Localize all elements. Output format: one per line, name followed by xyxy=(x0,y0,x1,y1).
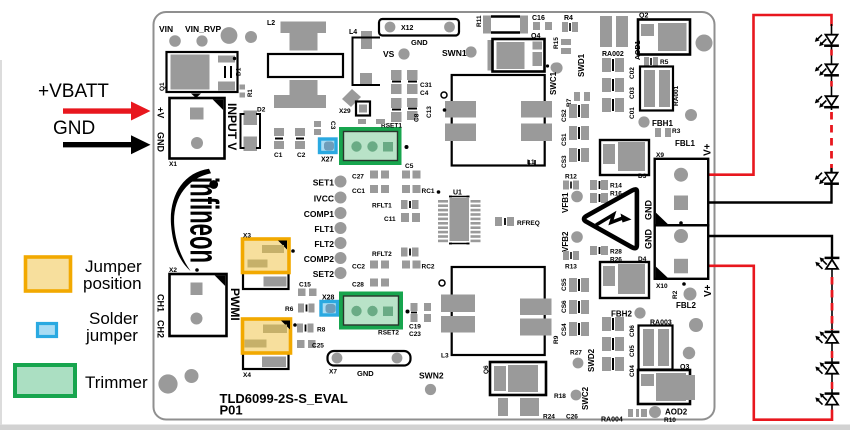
svg-text:CS2: CS2 xyxy=(561,109,568,122)
svg-text:IVCC: IVCC xyxy=(314,194,334,204)
svg-text:R6: R6 xyxy=(285,306,294,313)
svg-text:U1: U1 xyxy=(453,190,462,197)
svg-text:C27: C27 xyxy=(352,174,364,181)
svg-text:P01: P01 xyxy=(220,403,243,418)
svg-text:RC2: RC2 xyxy=(422,264,435,271)
svg-text:C28: C28 xyxy=(352,282,364,289)
svg-text:CS5: CS5 xyxy=(561,278,568,291)
svg-text:SWN2: SWN2 xyxy=(419,371,444,381)
svg-text:X29: X29 xyxy=(339,108,351,115)
svg-text:CS6: CS6 xyxy=(561,300,568,313)
svg-text:V+: V+ xyxy=(703,143,714,156)
svg-text:RA002: RA002 xyxy=(602,51,624,58)
svg-text:VIN: VIN xyxy=(159,24,173,34)
svg-text:CS4: CS4 xyxy=(561,323,568,336)
svg-text:FLT1: FLT1 xyxy=(314,224,334,234)
svg-text:L1: L1 xyxy=(527,159,535,166)
svg-text:R1: R1 xyxy=(248,89,254,97)
svg-text:X27: X27 xyxy=(321,157,334,164)
svg-text:CC1: CC1 xyxy=(352,188,365,195)
svg-text:SWD2: SWD2 xyxy=(587,348,596,372)
svg-text:Q6: Q6 xyxy=(483,365,490,374)
svg-text:COMP1: COMP1 xyxy=(304,209,335,219)
svg-text:SWC2: SWC2 xyxy=(581,386,590,410)
svg-text:SWN1: SWN1 xyxy=(442,48,467,58)
svg-text:C04: C04 xyxy=(629,365,636,377)
svg-text:VFB1: VFB1 xyxy=(561,192,570,213)
svg-text:R9: R9 xyxy=(553,335,560,344)
svg-text:D2: D2 xyxy=(257,107,266,114)
svg-text:R27: R27 xyxy=(570,350,582,357)
svg-text:C06: C06 xyxy=(629,325,636,337)
svg-text:X12: X12 xyxy=(401,25,414,32)
svg-text:C13: C13 xyxy=(426,106,433,118)
svg-text:R12: R12 xyxy=(565,174,577,181)
svg-text:VS: VS xyxy=(383,49,395,59)
svg-text:GND: GND xyxy=(644,229,654,250)
svg-text:C4: C4 xyxy=(420,90,429,97)
svg-text:position: position xyxy=(83,274,142,293)
svg-text:C1: C1 xyxy=(274,152,283,159)
svg-text:X9: X9 xyxy=(656,152,664,159)
svg-text:C8: C8 xyxy=(414,113,421,122)
svg-text:GND: GND xyxy=(357,369,374,378)
svg-text:C5: C5 xyxy=(405,163,414,170)
svg-text:R13: R13 xyxy=(565,264,577,271)
svg-text:C26: C26 xyxy=(566,414,578,421)
svg-text:Trimmer: Trimmer xyxy=(85,373,148,392)
svg-text:R28: R28 xyxy=(610,249,622,256)
svg-text:X28: X28 xyxy=(322,295,335,302)
svg-text:GND: GND xyxy=(156,132,166,153)
svg-text:RFLT1: RFLT1 xyxy=(372,203,392,210)
svg-text:C25: C25 xyxy=(312,343,324,350)
svg-text:FLT2: FLT2 xyxy=(314,239,334,249)
svg-text:R8: R8 xyxy=(317,327,326,334)
svg-text:R10: R10 xyxy=(664,417,676,424)
svg-text:infineon: infineon xyxy=(182,177,226,263)
svg-text:C31: C31 xyxy=(420,82,432,89)
svg-text:L4: L4 xyxy=(349,29,357,36)
svg-text:FBH1: FBH1 xyxy=(652,119,673,128)
svg-text:GND: GND xyxy=(53,118,95,139)
svg-text:RSET2: RSET2 xyxy=(378,330,399,337)
svg-text:Q2: Q2 xyxy=(639,13,648,20)
svg-text:RFREQ: RFREQ xyxy=(517,220,540,227)
svg-text:R3: R3 xyxy=(672,128,681,135)
svg-text:C01: C01 xyxy=(629,107,636,119)
svg-text:RFLT2: RFLT2 xyxy=(372,251,392,258)
svg-text:L3: L3 xyxy=(441,353,449,360)
svg-text:CH2: CH2 xyxy=(156,320,166,338)
svg-text:COMP2: COMP2 xyxy=(304,254,335,264)
svg-text:RC1: RC1 xyxy=(422,188,435,195)
svg-text:+V: +V xyxy=(156,107,166,118)
svg-text:X4: X4 xyxy=(243,372,251,379)
svg-text:+VBATT: +VBATT xyxy=(38,81,109,102)
svg-text:CS1: CS1 xyxy=(561,133,568,146)
svg-text:RA003: RA003 xyxy=(650,320,672,327)
svg-text:R18: R18 xyxy=(554,393,566,400)
svg-text:AOD1: AOD1 xyxy=(635,40,642,60)
svg-text:GND: GND xyxy=(644,200,654,221)
svg-text:SWD1: SWD1 xyxy=(577,53,586,77)
svg-text:D4: D4 xyxy=(638,256,647,263)
svg-text:C05: C05 xyxy=(629,345,636,357)
svg-text:R2: R2 xyxy=(672,290,679,299)
svg-text:CH1: CH1 xyxy=(156,294,166,312)
svg-text:C02: C02 xyxy=(629,67,636,79)
svg-text:R14: R14 xyxy=(610,183,622,190)
svg-text:INPUT V: INPUT V xyxy=(225,103,239,150)
svg-text:V+: V+ xyxy=(703,284,714,297)
svg-text:CC2: CC2 xyxy=(352,264,365,271)
svg-text:CS3: CS3 xyxy=(561,155,568,168)
svg-text:R11: R11 xyxy=(476,15,483,27)
svg-text:X3: X3 xyxy=(243,233,251,240)
svg-text:C15: C15 xyxy=(299,282,311,289)
svg-text:C03: C03 xyxy=(629,87,636,99)
svg-text:VIN_RVP: VIN_RVP xyxy=(185,24,222,34)
svg-text:X1: X1 xyxy=(169,161,177,168)
svg-text:D1: D1 xyxy=(236,67,243,76)
svg-text:X10: X10 xyxy=(656,283,668,290)
svg-text:Q1: Q1 xyxy=(159,82,166,91)
svg-text:D3: D3 xyxy=(638,173,647,180)
svg-text:Q4: Q4 xyxy=(531,33,540,40)
svg-text:SET1: SET1 xyxy=(313,178,335,188)
svg-text:RA001: RA001 xyxy=(673,85,680,106)
svg-text:X2: X2 xyxy=(169,267,177,274)
svg-text:FBL1: FBL1 xyxy=(675,139,696,148)
svg-text:PWMI: PWMI xyxy=(228,288,242,321)
svg-text:GND: GND xyxy=(411,38,428,47)
svg-text:C19: C19 xyxy=(409,324,421,331)
svg-text:VFB2: VFB2 xyxy=(561,231,570,252)
svg-text:C3: C3 xyxy=(329,121,336,130)
svg-text:R24: R24 xyxy=(543,414,555,421)
svg-text:C11: C11 xyxy=(384,216,396,223)
svg-text:R5: R5 xyxy=(660,59,669,66)
svg-text:RA004: RA004 xyxy=(601,417,623,424)
svg-text:AOD2: AOD2 xyxy=(665,408,688,417)
svg-text:L2: L2 xyxy=(267,20,275,27)
svg-text:C2: C2 xyxy=(297,152,306,159)
svg-text:C23: C23 xyxy=(409,331,421,338)
svg-text:C16: C16 xyxy=(532,15,545,22)
svg-text:SWC1: SWC1 xyxy=(549,71,558,95)
svg-text:R4: R4 xyxy=(564,15,573,22)
svg-text:X7: X7 xyxy=(329,369,337,376)
svg-text:Q3: Q3 xyxy=(680,364,689,371)
svg-text:FBL2: FBL2 xyxy=(676,301,697,310)
svg-text:SET2: SET2 xyxy=(313,269,335,279)
svg-text:jumper: jumper xyxy=(85,326,138,345)
svg-text:R15: R15 xyxy=(553,37,560,49)
